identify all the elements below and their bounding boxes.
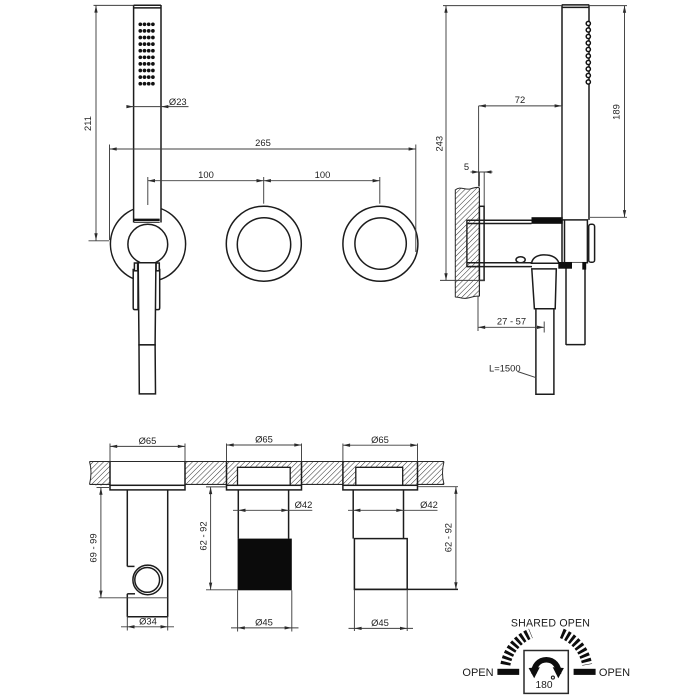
svg-text:Ø34: Ø34: [139, 615, 157, 626]
svg-text:100: 100: [198, 169, 214, 180]
svg-text:OPEN: OPEN: [599, 667, 630, 679]
svg-text:Ø45: Ø45: [255, 617, 273, 628]
svg-text:OPEN: OPEN: [462, 667, 493, 679]
svg-text:211: 211: [82, 116, 93, 131]
svg-text:243: 243: [433, 136, 444, 152]
svg-text:62 - 92: 62 - 92: [197, 521, 208, 550]
svg-text:Ø45: Ø45: [371, 617, 389, 628]
svg-text:Ø23: Ø23: [169, 96, 187, 107]
svg-text:Ø42: Ø42: [295, 499, 313, 510]
svg-text:Ø65: Ø65: [371, 434, 389, 445]
svg-text:189: 189: [610, 104, 621, 120]
svg-text:69 - 99: 69 - 99: [87, 533, 98, 562]
svg-text:Ø65: Ø65: [255, 434, 273, 445]
svg-text:27 - 57: 27 - 57: [497, 316, 526, 327]
svg-text:Ø42: Ø42: [420, 499, 438, 510]
svg-text:SHARED OPEN: SHARED OPEN: [511, 618, 590, 630]
svg-text:100: 100: [315, 169, 331, 180]
svg-text:Ø65: Ø65: [139, 435, 157, 446]
svg-text:265: 265: [255, 137, 271, 148]
svg-text:62 - 92: 62 - 92: [442, 523, 453, 552]
svg-text:5: 5: [464, 161, 469, 172]
svg-text:L=1500: L=1500: [489, 362, 521, 373]
svg-text:180: 180: [536, 680, 553, 691]
svg-text:72: 72: [515, 94, 525, 105]
